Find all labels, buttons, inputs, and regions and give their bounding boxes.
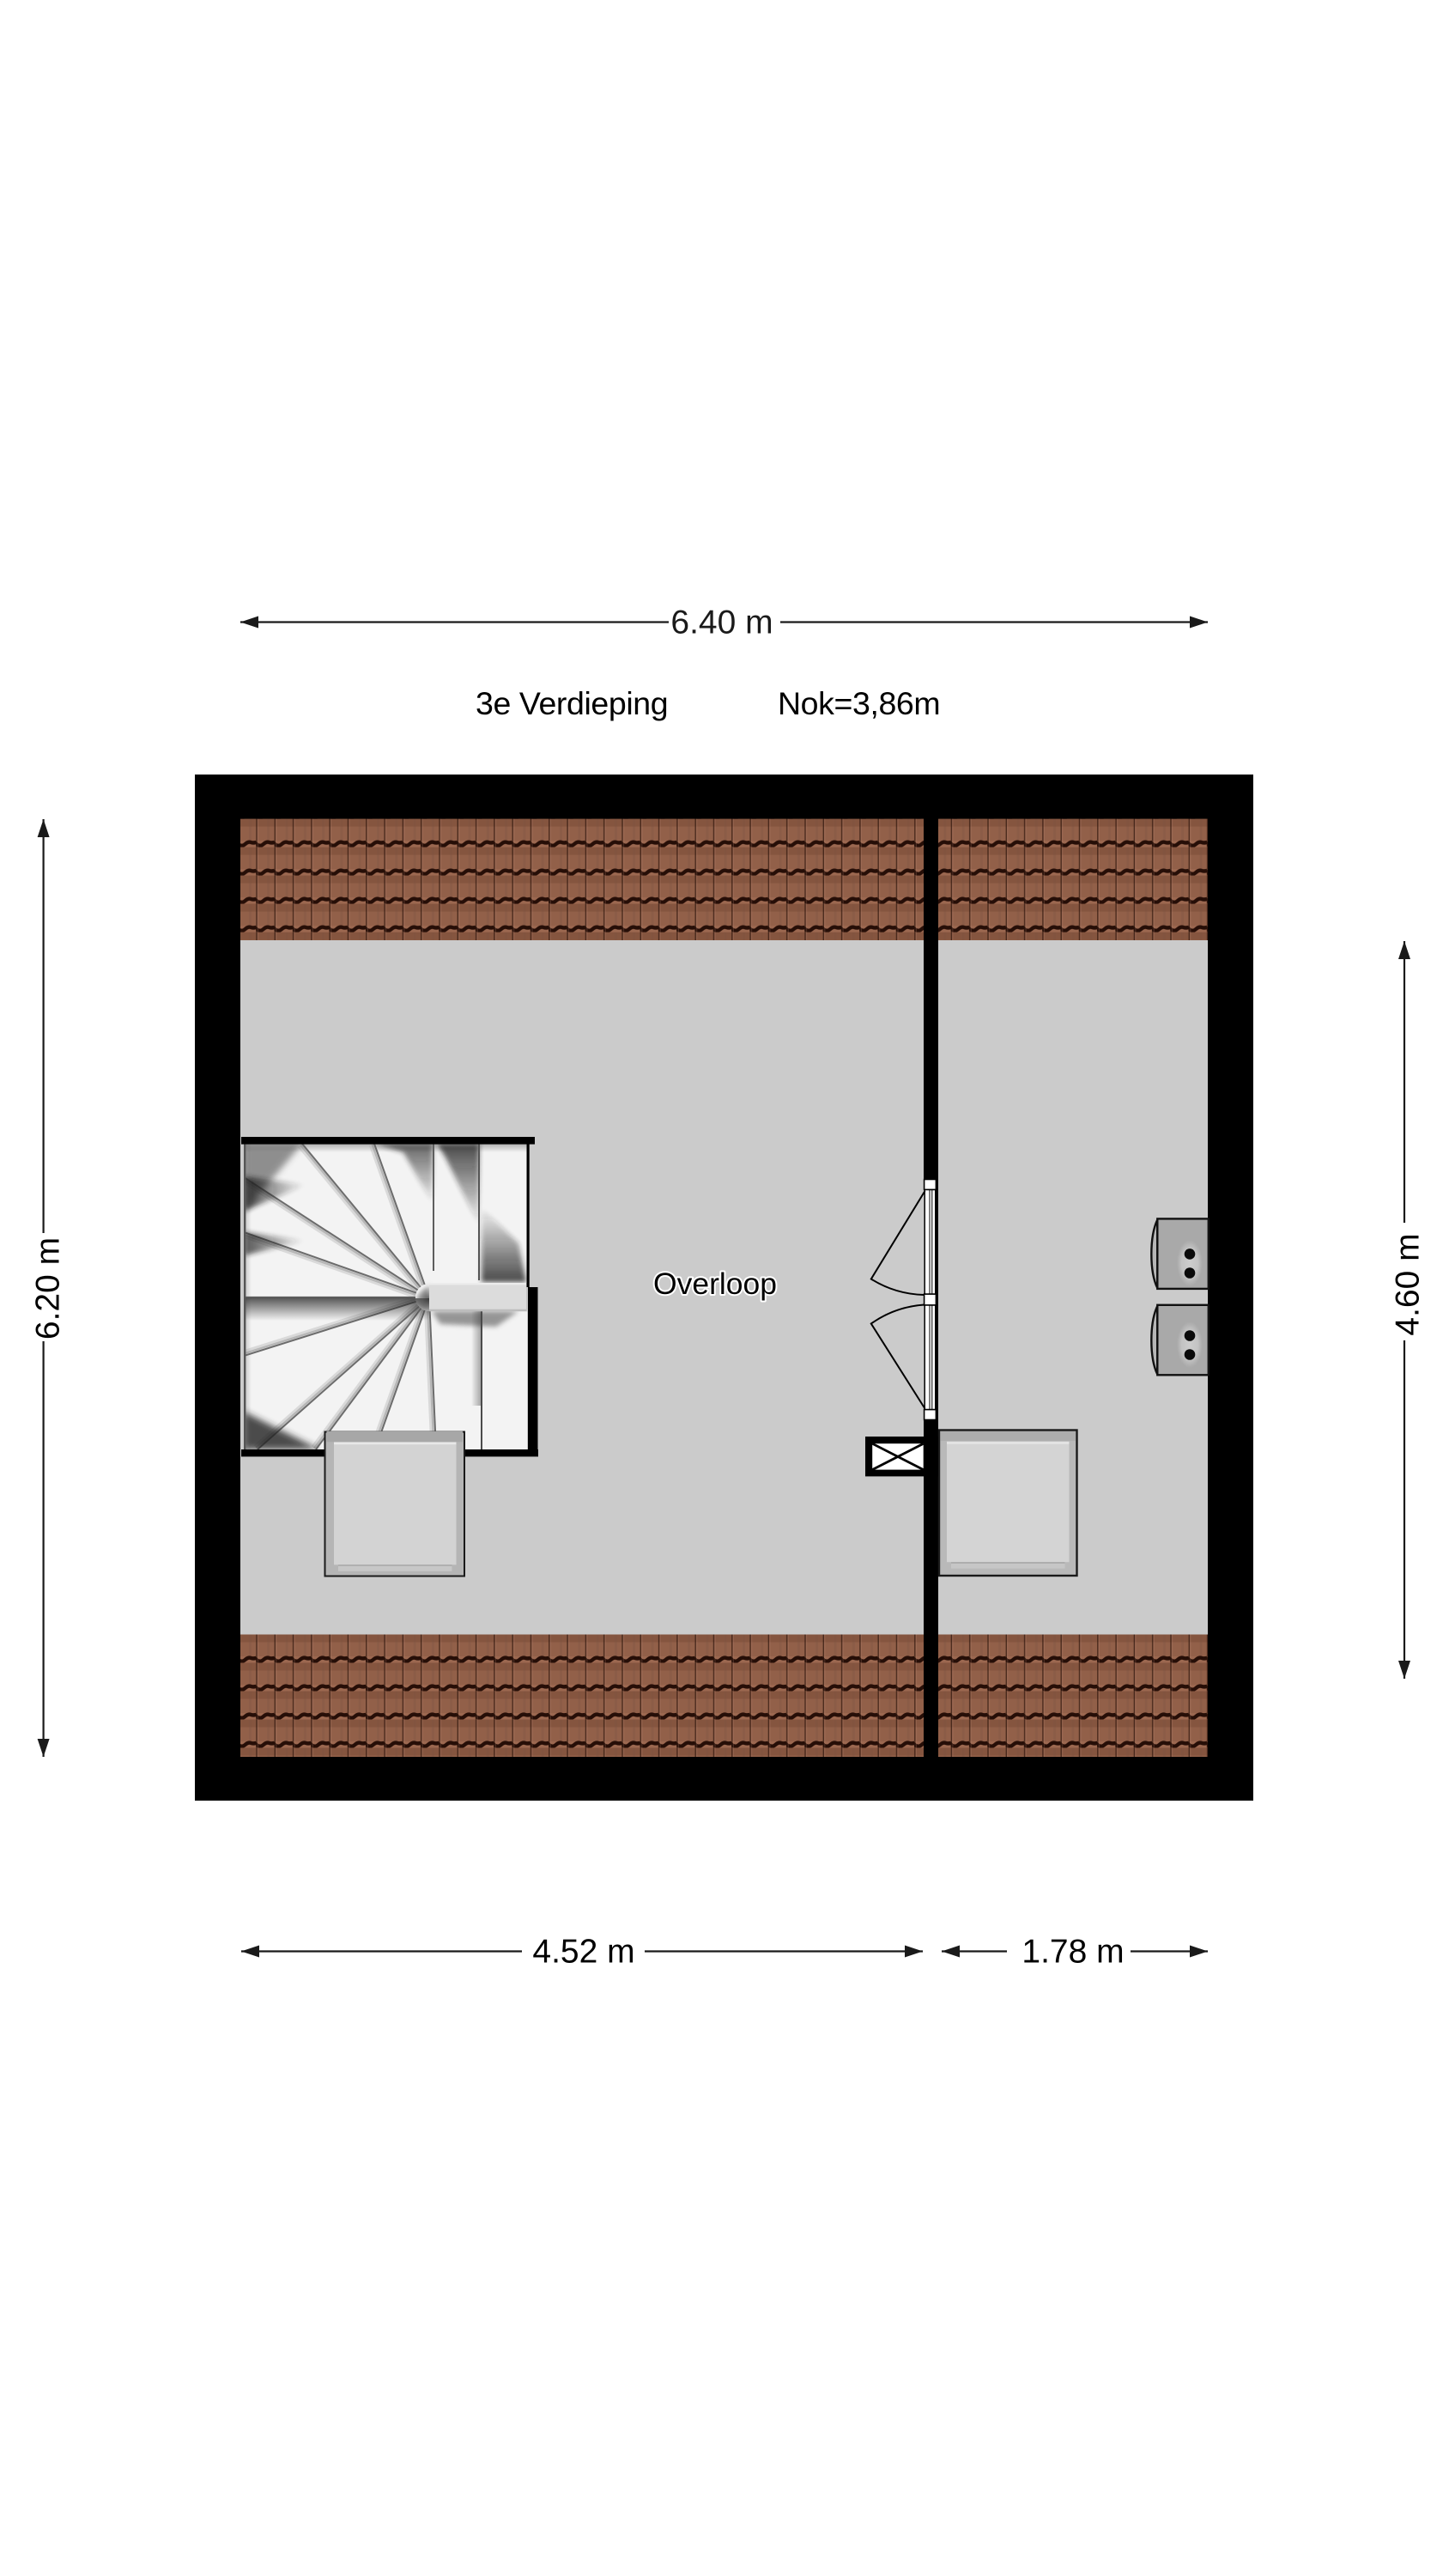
svg-text:4.52 m: 4.52 m [532, 1934, 634, 1971]
svg-text:4.60 m: 4.60 m [1390, 1233, 1427, 1335]
svg-text:Overloop: Overloop [653, 1267, 777, 1301]
svg-text:3e Verdieping: 3e Verdieping [476, 685, 668, 721]
svg-text:6.40 m: 6.40 m [670, 605, 773, 641]
svg-text:1.78 m: 1.78 m [1022, 1934, 1124, 1971]
svg-text:6.20 m: 6.20 m [30, 1237, 67, 1340]
svg-text:Nok=3,86m: Nok=3,86m [778, 685, 940, 721]
